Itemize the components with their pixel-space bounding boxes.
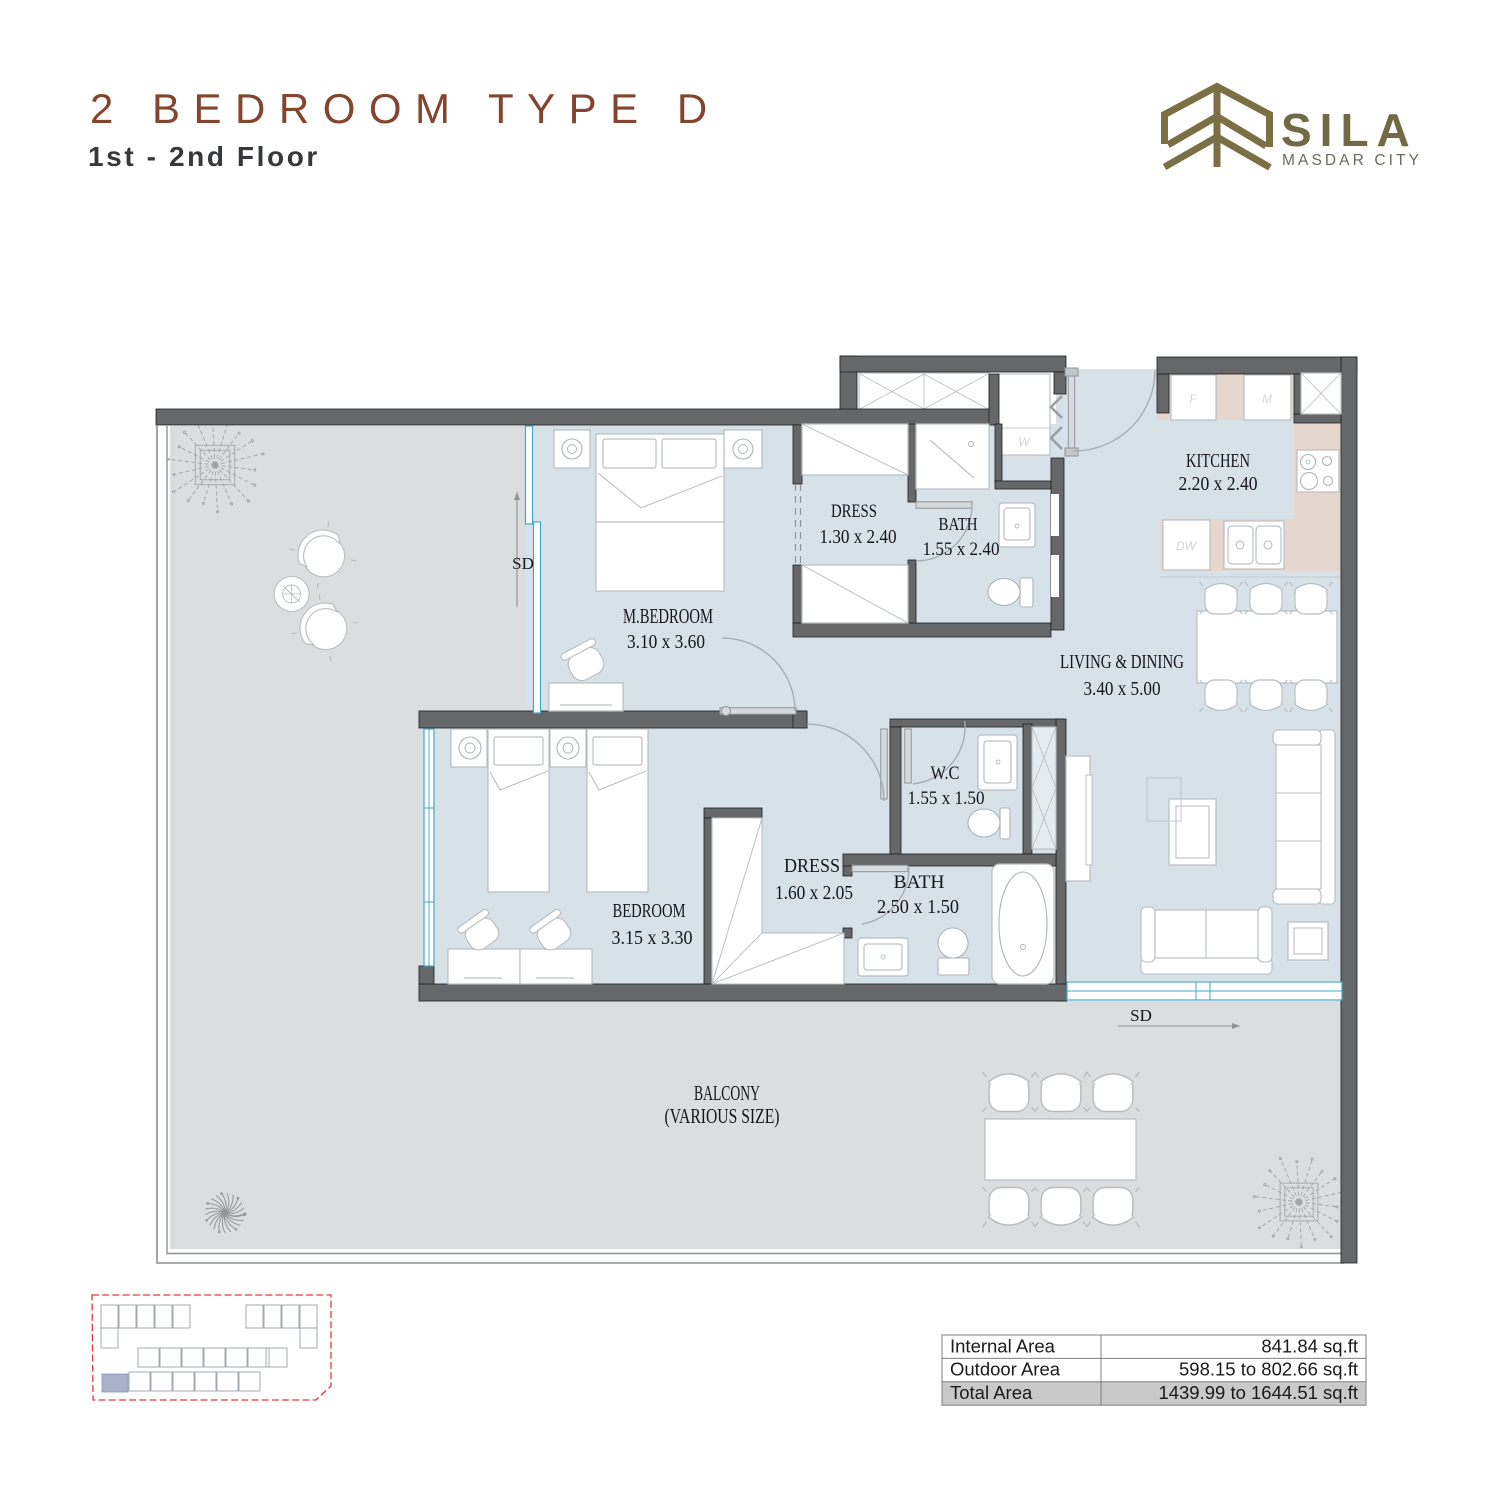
svg-text:1.55 x 1.50: 1.55 x 1.50: [908, 788, 985, 809]
svg-text:1439.99 to 1644.51 sq.ft: 1439.99 to 1644.51 sq.ft: [1158, 1382, 1358, 1403]
svg-text:F: F: [1189, 392, 1197, 406]
svg-text:KITCHEN: KITCHEN: [1186, 450, 1250, 472]
svg-text:W.C: W.C: [931, 763, 960, 784]
svg-text:SD: SD: [1130, 1006, 1152, 1025]
svg-text:1st - 2nd Floor: 1st - 2nd Floor: [88, 141, 320, 172]
svg-text:598.15 to 802.66 sq.ft: 598.15 to 802.66 sq.ft: [1179, 1359, 1358, 1380]
svg-text:2.50 x 1.50: 2.50 x 1.50: [877, 896, 959, 918]
svg-text:BALCONY: BALCONY: [694, 1081, 760, 1105]
svg-text:1.60 x 2.05: 1.60 x 2.05: [775, 882, 853, 904]
svg-text:SILA: SILA: [1281, 104, 1418, 156]
svg-text:DW: DW: [1176, 539, 1198, 553]
svg-text:841.84 sq.ft: 841.84 sq.ft: [1261, 1335, 1358, 1356]
svg-text:LIVING & DINING: LIVING & DINING: [1060, 651, 1184, 673]
svg-text:1.55 x 2.40: 1.55 x 2.40: [923, 539, 1000, 560]
svg-text:SD: SD: [512, 554, 534, 573]
svg-text:Internal Area: Internal Area: [950, 1335, 1056, 1356]
svg-text:DRESS: DRESS: [831, 501, 877, 522]
svg-text:2.20 x 2.40: 2.20 x 2.40: [1179, 474, 1258, 495]
svg-text:3.15 x 3.30: 3.15 x 3.30: [612, 927, 693, 949]
svg-text:BATH: BATH: [894, 872, 945, 893]
svg-text:Total Area: Total Area: [950, 1382, 1033, 1403]
svg-text:3.10 x 3.60: 3.10 x 3.60: [627, 631, 705, 653]
svg-text:(VARIOUS SIZE): (VARIOUS SIZE): [665, 1104, 780, 1128]
svg-text:Outdoor Area: Outdoor Area: [950, 1359, 1061, 1380]
svg-text:M.BEDROOM: M.BEDROOM: [623, 604, 713, 628]
svg-text:MASDAR CITY: MASDAR CITY: [1282, 152, 1422, 169]
svg-text:2 BEDROOM TYPE D: 2 BEDROOM TYPE D: [90, 85, 721, 132]
svg-text:1.30 x 2.40: 1.30 x 2.40: [820, 527, 897, 548]
svg-text:BATH: BATH: [939, 514, 978, 534]
svg-text:M: M: [1262, 392, 1272, 406]
svg-text:DRESS: DRESS: [784, 855, 840, 877]
svg-text:3.40 x 5.00: 3.40 x 5.00: [1084, 678, 1161, 700]
svg-text:W: W: [1018, 435, 1031, 449]
svg-text:BEDROOM: BEDROOM: [613, 900, 686, 922]
